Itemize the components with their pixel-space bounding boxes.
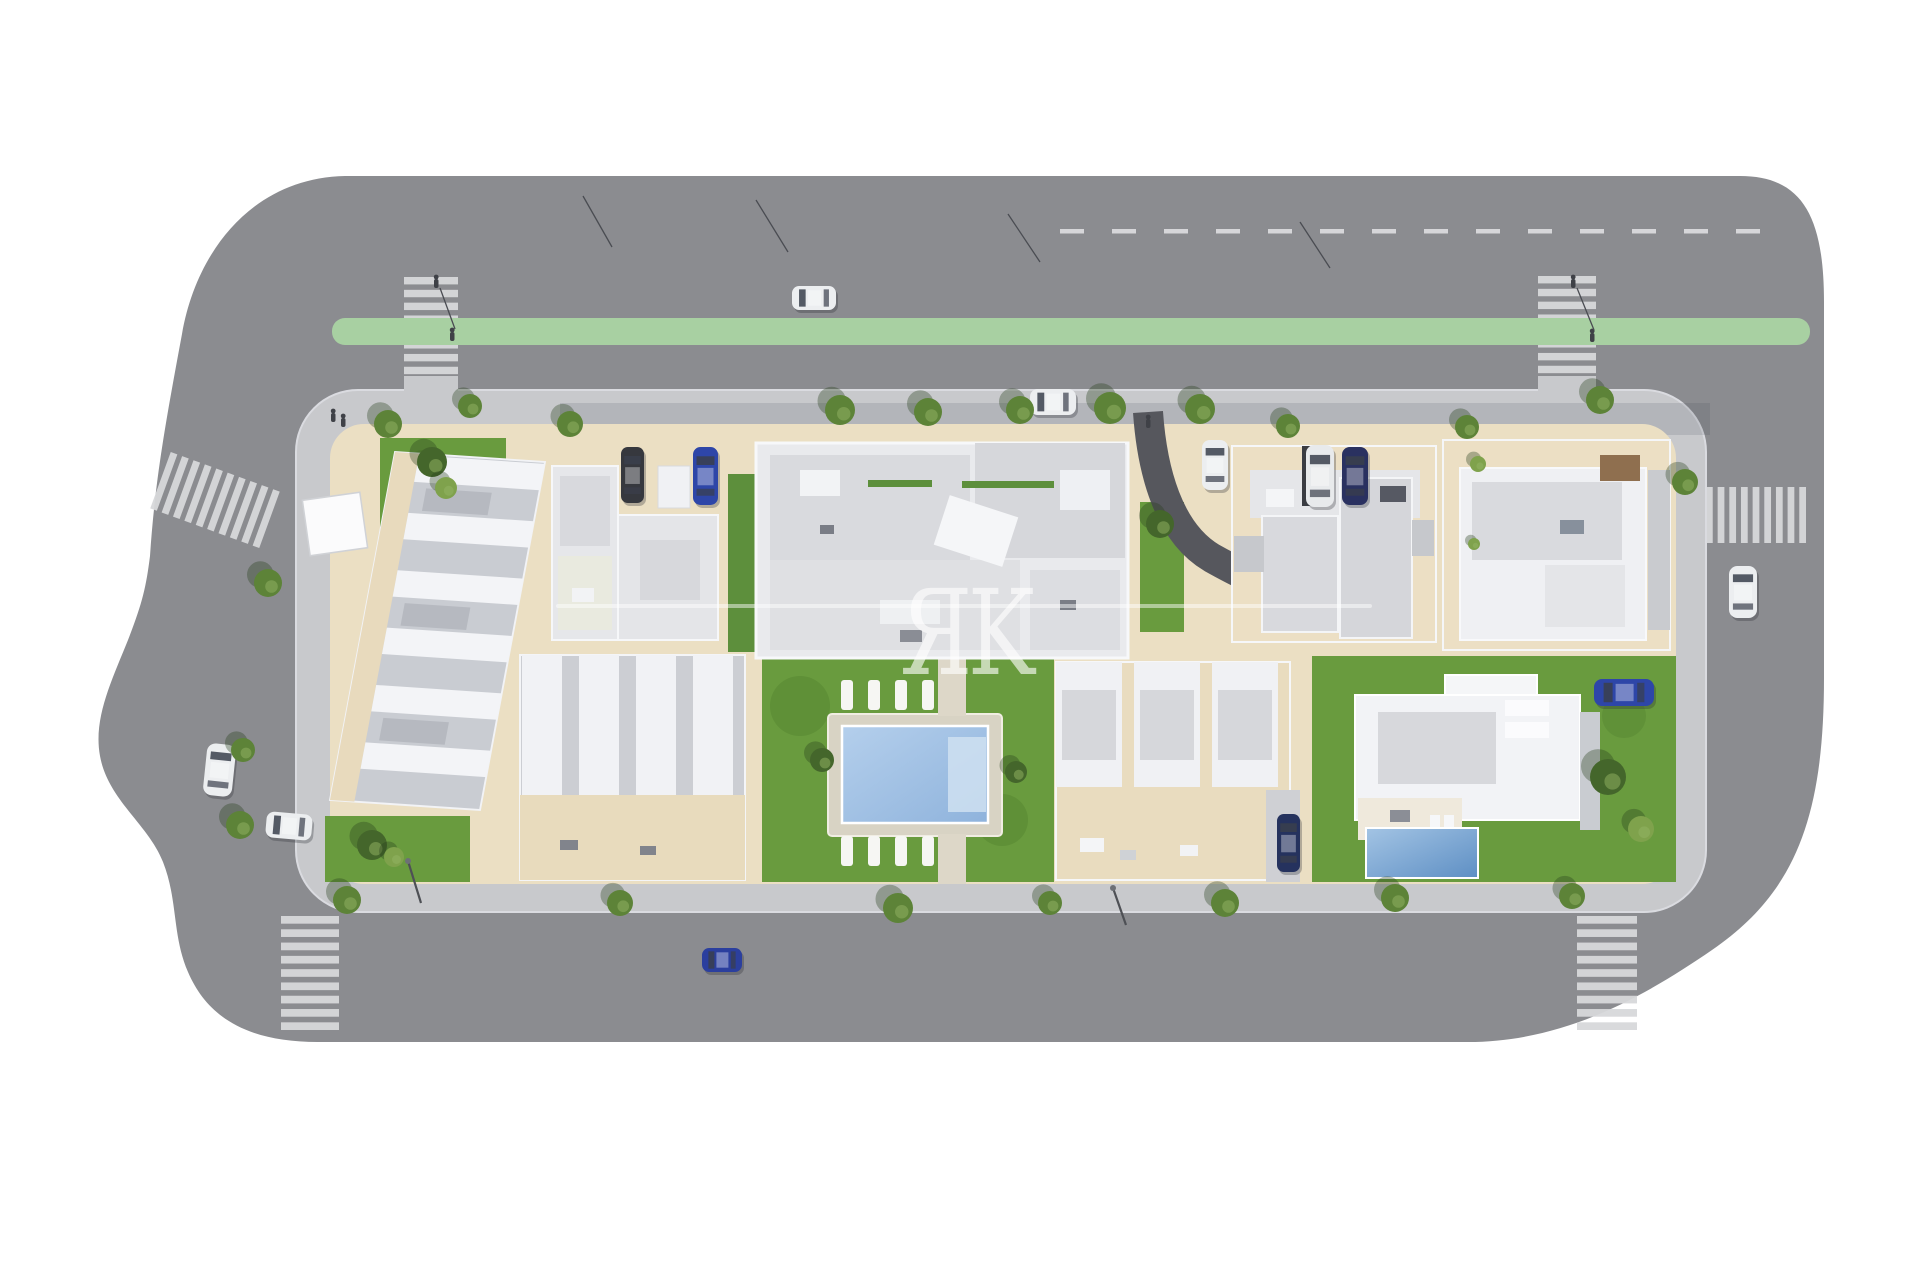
pool-path-south [938, 834, 966, 884]
car-blue-villa [1594, 679, 1656, 709]
gazebo-west [302, 492, 367, 556]
car-white-parked-north [1030, 389, 1078, 418]
car-blue-courtyard [693, 447, 720, 508]
car-blue-road-south [702, 948, 744, 975]
van-white-block-b [1306, 445, 1336, 510]
bike-lane-green [332, 318, 1810, 345]
lawn-dark-patch [770, 676, 830, 736]
pedestrian-figure [341, 414, 346, 427]
car-black-courtyard [621, 447, 646, 506]
car-white-driveway [1202, 440, 1230, 493]
car-navy-block-b [1342, 447, 1370, 508]
car-white-parcel-west [265, 811, 315, 844]
watermark-text: ЯK [900, 574, 1030, 692]
pedestrian-figure [1146, 415, 1151, 428]
crosswalk-bottom-right [1577, 916, 1637, 1030]
pedestrian-figure [331, 409, 336, 422]
pool-steps [948, 737, 986, 812]
pedestrian-figure [434, 275, 439, 288]
pedestrian-figure [1590, 329, 1595, 342]
car-white-road-north [792, 286, 838, 313]
crosswalk-east [1706, 487, 1806, 543]
pedestrian-figure [1571, 275, 1576, 288]
hedge-strip-center [728, 474, 758, 652]
townhouse-row-south-a [520, 655, 745, 880]
crosswalk-bottom-left [281, 916, 339, 1030]
sidewalk-tab-left [404, 376, 458, 394]
pedestrian-figure [450, 328, 455, 341]
car-blue-row-south [1277, 814, 1302, 875]
townhouse-row-south-b [1056, 662, 1300, 882]
screenshot-root: ЯK [0, 0, 1920, 1280]
car-white-road-east [1729, 566, 1759, 621]
